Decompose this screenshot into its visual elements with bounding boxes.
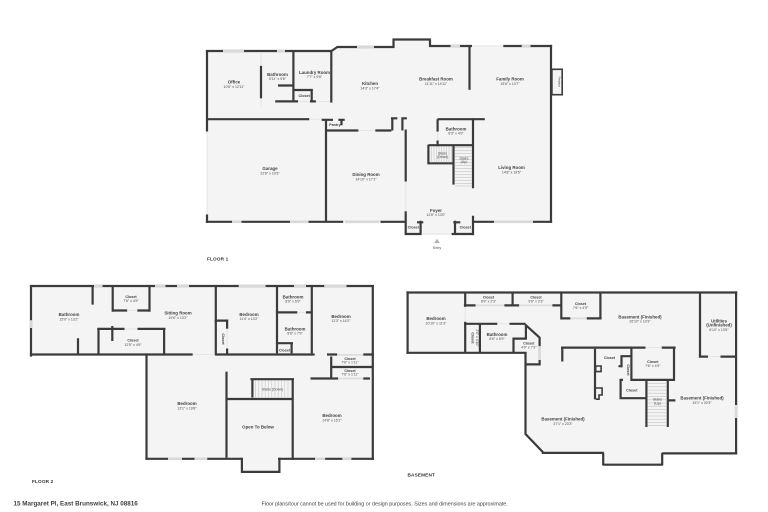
svg-text:Closet: Closet xyxy=(460,225,472,229)
svg-text:FLOOR 1: FLOOR 1 xyxy=(207,257,229,262)
svg-text:11'11" x 14'11": 11'11" x 14'11" xyxy=(425,82,448,86)
svg-text:Living Room: Living Room xyxy=(498,165,525,170)
svg-text:14'8" x 15'1": 14'8" x 15'1" xyxy=(322,419,342,423)
svg-text:(Unfinished): (Unfinished) xyxy=(706,323,732,328)
svg-text:Closet: Closet xyxy=(626,388,638,392)
svg-text:7'6" x 1'11": 7'6" x 1'11" xyxy=(342,361,360,365)
svg-text:(Up): (Up) xyxy=(461,160,468,164)
svg-text:Closet: Closet xyxy=(221,333,225,345)
svg-text:15'6" x 13'7": 15'6" x 13'7" xyxy=(500,82,520,86)
svg-text:Closet: Closet xyxy=(471,332,475,344)
svg-text:Bedroom: Bedroom xyxy=(331,314,350,319)
svg-text:Open To Below: Open To Below xyxy=(242,425,274,430)
svg-text:10'6" x 12'11": 10'6" x 12'11" xyxy=(224,85,246,89)
svg-text:6'10" x 13'5": 6'10" x 13'5" xyxy=(709,328,729,332)
svg-text:14'3" x 17'4": 14'3" x 17'4" xyxy=(360,86,380,90)
svg-text:12'5" x 4'9": 12'5" x 4'9" xyxy=(124,343,142,347)
svg-text:7'6" x 4'9": 7'6" x 4'9" xyxy=(123,299,139,303)
svg-text:Bathroom: Bathroom xyxy=(59,312,80,317)
svg-text:19'1" x 20'3": 19'1" x 20'3" xyxy=(692,401,712,405)
svg-text:7'6" x 4'9": 7'6" x 4'9" xyxy=(573,306,589,310)
svg-text:2'0" x 4'10": 2'0" x 4'10" xyxy=(475,329,479,347)
svg-text:Office: Office xyxy=(228,80,241,85)
svg-text:14'8" x 19'5": 14'8" x 19'5" xyxy=(502,170,522,174)
svg-text:10'10" x 11'3": 10'10" x 11'3" xyxy=(426,321,448,325)
svg-text:Entry: Entry xyxy=(433,246,441,250)
svg-text:Bedroom: Bedroom xyxy=(177,401,196,406)
svg-text:15 Margaret Pl, East Brunswick: 15 Margaret Pl, East Brunswick, NJ 08816 xyxy=(14,501,139,508)
svg-text:8'6" x 7'9": 8'6" x 7'9" xyxy=(287,332,303,336)
svg-text:Stairs (Down): Stairs (Down) xyxy=(262,388,283,392)
svg-text:Fireplace: Fireplace xyxy=(558,77,561,88)
svg-text:8'3" x 4'9": 8'3" x 4'9" xyxy=(448,131,464,135)
svg-text:BASEMENT: BASEMENT xyxy=(408,472,436,477)
svg-text:7'6" x 4'9": 7'6" x 4'9" xyxy=(645,364,661,368)
svg-text:(Down): (Down) xyxy=(437,155,448,159)
svg-text:9'6" x 2'3": 9'6" x 2'3" xyxy=(528,299,544,303)
svg-text:Sitting Room: Sitting Room xyxy=(164,311,191,316)
svg-text:Floor plans/tour cannot be use: Floor plans/tour cannot be used for buil… xyxy=(262,501,508,507)
svg-text:11'4" x 13'2": 11'4" x 13'2" xyxy=(240,317,260,321)
svg-text:Bedroom: Bedroom xyxy=(426,316,445,321)
svg-text:26'10" x 10'3": 26'10" x 10'3" xyxy=(629,320,651,324)
svg-text:13'1" x 19'8": 13'1" x 19'8" xyxy=(177,407,197,411)
svg-text:4'9" x 7'3": 4'9" x 7'3" xyxy=(521,346,537,350)
svg-text:Closet: Closet xyxy=(299,94,311,98)
svg-text:7'7" x 9'6": 7'7" x 9'6" xyxy=(307,75,323,79)
svg-text:Foyer: Foyer xyxy=(430,208,442,213)
svg-text:Bedroom: Bedroom xyxy=(239,312,258,317)
svg-text:Family Room: Family Room xyxy=(496,77,524,82)
svg-text:8'6" x 6'9": 8'6" x 6'9" xyxy=(285,299,301,303)
svg-text:8'6" x 5'9": 8'6" x 5'9" xyxy=(489,337,505,341)
svg-text:Closet: Closet xyxy=(604,356,616,360)
svg-text:Closet: Closet xyxy=(626,364,630,376)
svg-text:8'9" x 2'3": 8'9" x 2'3" xyxy=(481,299,497,303)
svg-text:Closet: Closet xyxy=(279,349,291,353)
svg-text:Garage: Garage xyxy=(262,166,278,171)
svg-text:12'8" x 13'0": 12'8" x 13'0" xyxy=(426,213,446,217)
svg-text:19'6" x 13'2": 19'6" x 13'2" xyxy=(168,316,188,320)
svg-text:Pantry: Pantry xyxy=(329,123,341,127)
svg-text:(Up): (Up) xyxy=(654,401,661,405)
svg-text:14'10" x 17'1": 14'10" x 17'1" xyxy=(355,177,377,181)
svg-text:Bedroom: Bedroom xyxy=(322,413,341,418)
svg-text:Basement (Finished): Basement (Finished) xyxy=(541,417,585,422)
svg-text:Dining Room: Dining Room xyxy=(352,172,379,177)
svg-text:Closet: Closet xyxy=(408,225,420,229)
svg-text:15'0" x 13'2": 15'0" x 13'2" xyxy=(59,317,79,321)
svg-text:22'8" x 19'3": 22'8" x 19'3" xyxy=(260,171,280,175)
svg-text:27'1" x 23'3": 27'1" x 23'3" xyxy=(553,422,573,426)
svg-text:7'6" x 1'11": 7'6" x 1'11" xyxy=(342,373,360,377)
svg-text:11'3" x 14'2": 11'3" x 14'2" xyxy=(332,319,352,323)
svg-text:FLOOR 2: FLOOR 2 xyxy=(32,479,54,484)
svg-text:Kitchen: Kitchen xyxy=(362,81,378,86)
svg-text:5'11" x 9'6": 5'11" x 9'6" xyxy=(269,77,287,81)
svg-text:Breakfast Room: Breakfast Room xyxy=(419,77,453,82)
